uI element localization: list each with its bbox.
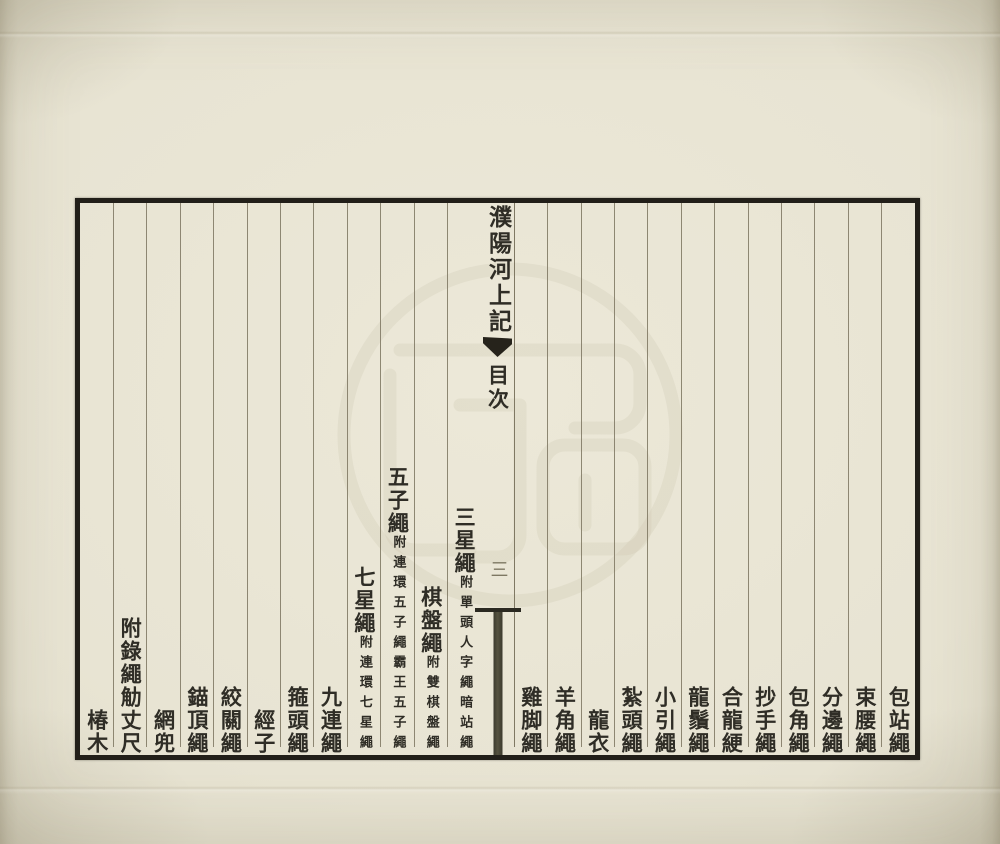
entry-title: 紮頭繩 [619, 686, 644, 755]
lower-black-bar [493, 612, 502, 755]
entry-title: 箍頭繩 [285, 686, 310, 755]
entry-title: 三星繩 [452, 506, 477, 575]
toc-entry-column: 五子繩附連環五子繩霸王五子繩 [381, 203, 414, 755]
toc-entry: 經子 [249, 268, 279, 755]
entry-title: 分邊繩 [820, 686, 845, 755]
entry-title: 龍衣 [586, 709, 611, 755]
toc-column-grid: 包站繩束腰繩分邊繩包角繩抄手繩合龍綆龍鬚繩小引繩紮頭繩龍衣羊角繩雞脚繩 濮陽河上… [80, 203, 915, 755]
entry-annotation: 附連環五子繩霸王五子繩 [390, 535, 405, 755]
toc-entry-column: 三星繩附單頭人字繩暗站繩 [447, 203, 480, 755]
toc-entry: 龍衣 [583, 268, 613, 755]
toc-entry-column: 羊角繩 [548, 203, 581, 755]
entry-title: 錨頂繩 [185, 686, 210, 755]
center-fold-column: 濮陽河上記 目次 三 [481, 203, 514, 755]
entry-title: 九連繩 [319, 686, 344, 755]
toc-entry-column: 小引繩 [648, 203, 681, 755]
toc-entry-column: 錨頂繩 [180, 203, 213, 755]
toc-entry-column: 合龍綆 [715, 203, 748, 755]
toc-entry: 束腰繩 [850, 268, 880, 755]
toc-entry: 錨頂繩 [182, 268, 212, 755]
toc-entry-column: 棋盤繩附雙棋盤繩 [414, 203, 447, 755]
entry-annotation: 附單頭人字繩暗站繩 [457, 575, 472, 755]
entry-title: 小引繩 [653, 686, 678, 755]
entry-annotation: 附雙棋盤繩 [424, 655, 439, 755]
toc-entry: 分邊繩 [817, 268, 847, 755]
section-label: 目次 [483, 364, 513, 412]
toc-entry: 五子繩附連環五子繩霸王五子繩 [382, 268, 412, 755]
toc-entry-column: 抄手繩 [748, 203, 781, 755]
toc-entry: 七星繩附連環七星繩 [349, 268, 379, 755]
toc-entry: 小引繩 [650, 268, 680, 755]
toc-entry-column: 紮頭繩 [614, 203, 647, 755]
toc-entry-column: 椿木 [80, 203, 113, 755]
toc-entry-column: 絞關繩 [214, 203, 247, 755]
entry-title: 網兜 [152, 709, 177, 755]
toc-entry-column: 束腰繩 [848, 203, 881, 755]
toc-entry-column: 雞脚繩 [514, 203, 547, 755]
toc-entry: 抄手繩 [750, 268, 780, 755]
entry-title: 五子繩 [385, 466, 410, 535]
toc-entry: 椿木 [82, 250, 112, 755]
toc-entry: 棋盤繩附雙棋盤繩 [416, 268, 446, 755]
book-title: 濮陽河上記 [481, 205, 515, 335]
toc-entry-column: 網兜 [147, 203, 180, 755]
entry-title: 椿木 [85, 709, 110, 755]
toc-entry: 附錄繩觔丈尺 [115, 268, 145, 755]
entry-title: 經子 [252, 709, 277, 755]
fishtail-mark-icon [483, 337, 512, 357]
toc-entry: 包站繩 [883, 268, 913, 755]
entry-title: 絞關繩 [218, 686, 243, 755]
entry-title: 合龍綆 [719, 686, 744, 755]
toc-entry: 三星繩附單頭人字繩暗站繩 [449, 268, 479, 755]
entry-title: 七星繩 [352, 566, 377, 635]
toc-entry-column: 包站繩 [882, 203, 915, 755]
toc-entry-column: 龍鬚繩 [681, 203, 714, 755]
toc-entry-column: 包角繩 [781, 203, 814, 755]
toc-entry: 包角繩 [783, 268, 813, 755]
toc-entry-column: 龍衣 [581, 203, 614, 755]
toc-entry-column: 九連繩 [314, 203, 347, 755]
entry-title: 雞脚繩 [519, 686, 544, 755]
entry-title: 龍鬚繩 [686, 686, 711, 755]
page-frame: 包站繩束腰繩分邊繩包角繩抄手繩合龍綆龍鬚繩小引繩紮頭繩龍衣羊角繩雞脚繩 濮陽河上… [75, 198, 920, 760]
toc-entry: 九連繩 [316, 268, 346, 755]
entry-title: 包角繩 [786, 686, 811, 755]
toc-entry-column: 分邊繩 [815, 203, 848, 755]
toc-entry-column: 經子 [247, 203, 280, 755]
toc-entry: 網兜 [149, 268, 179, 755]
entry-title: 羊角繩 [552, 686, 577, 755]
entry-annotation: 附連環七星繩 [357, 635, 372, 755]
toc-entry: 羊角繩 [549, 268, 579, 755]
entry-title: 包站繩 [886, 686, 911, 755]
toc-entry-column: 七星繩附連環七星繩 [347, 203, 380, 755]
toc-entry: 紮頭繩 [616, 268, 646, 755]
entry-title: 抄手繩 [753, 686, 778, 755]
toc-entry-column: 箍頭繩 [280, 203, 313, 755]
page-number: 三 [485, 560, 511, 578]
entry-title: 束腰繩 [853, 686, 878, 755]
entry-title: 附錄繩觔丈尺 [118, 617, 143, 755]
toc-entry-column: 附錄繩觔丈尺 [113, 203, 146, 755]
toc-entry: 箍頭繩 [282, 268, 312, 755]
toc-entry: 合龍綆 [716, 268, 746, 755]
entry-title: 棋盤繩 [419, 586, 444, 655]
toc-entry: 龍鬚繩 [683, 268, 713, 755]
toc-entry: 雞脚繩 [516, 268, 546, 755]
toc-entry: 絞關繩 [215, 268, 245, 755]
